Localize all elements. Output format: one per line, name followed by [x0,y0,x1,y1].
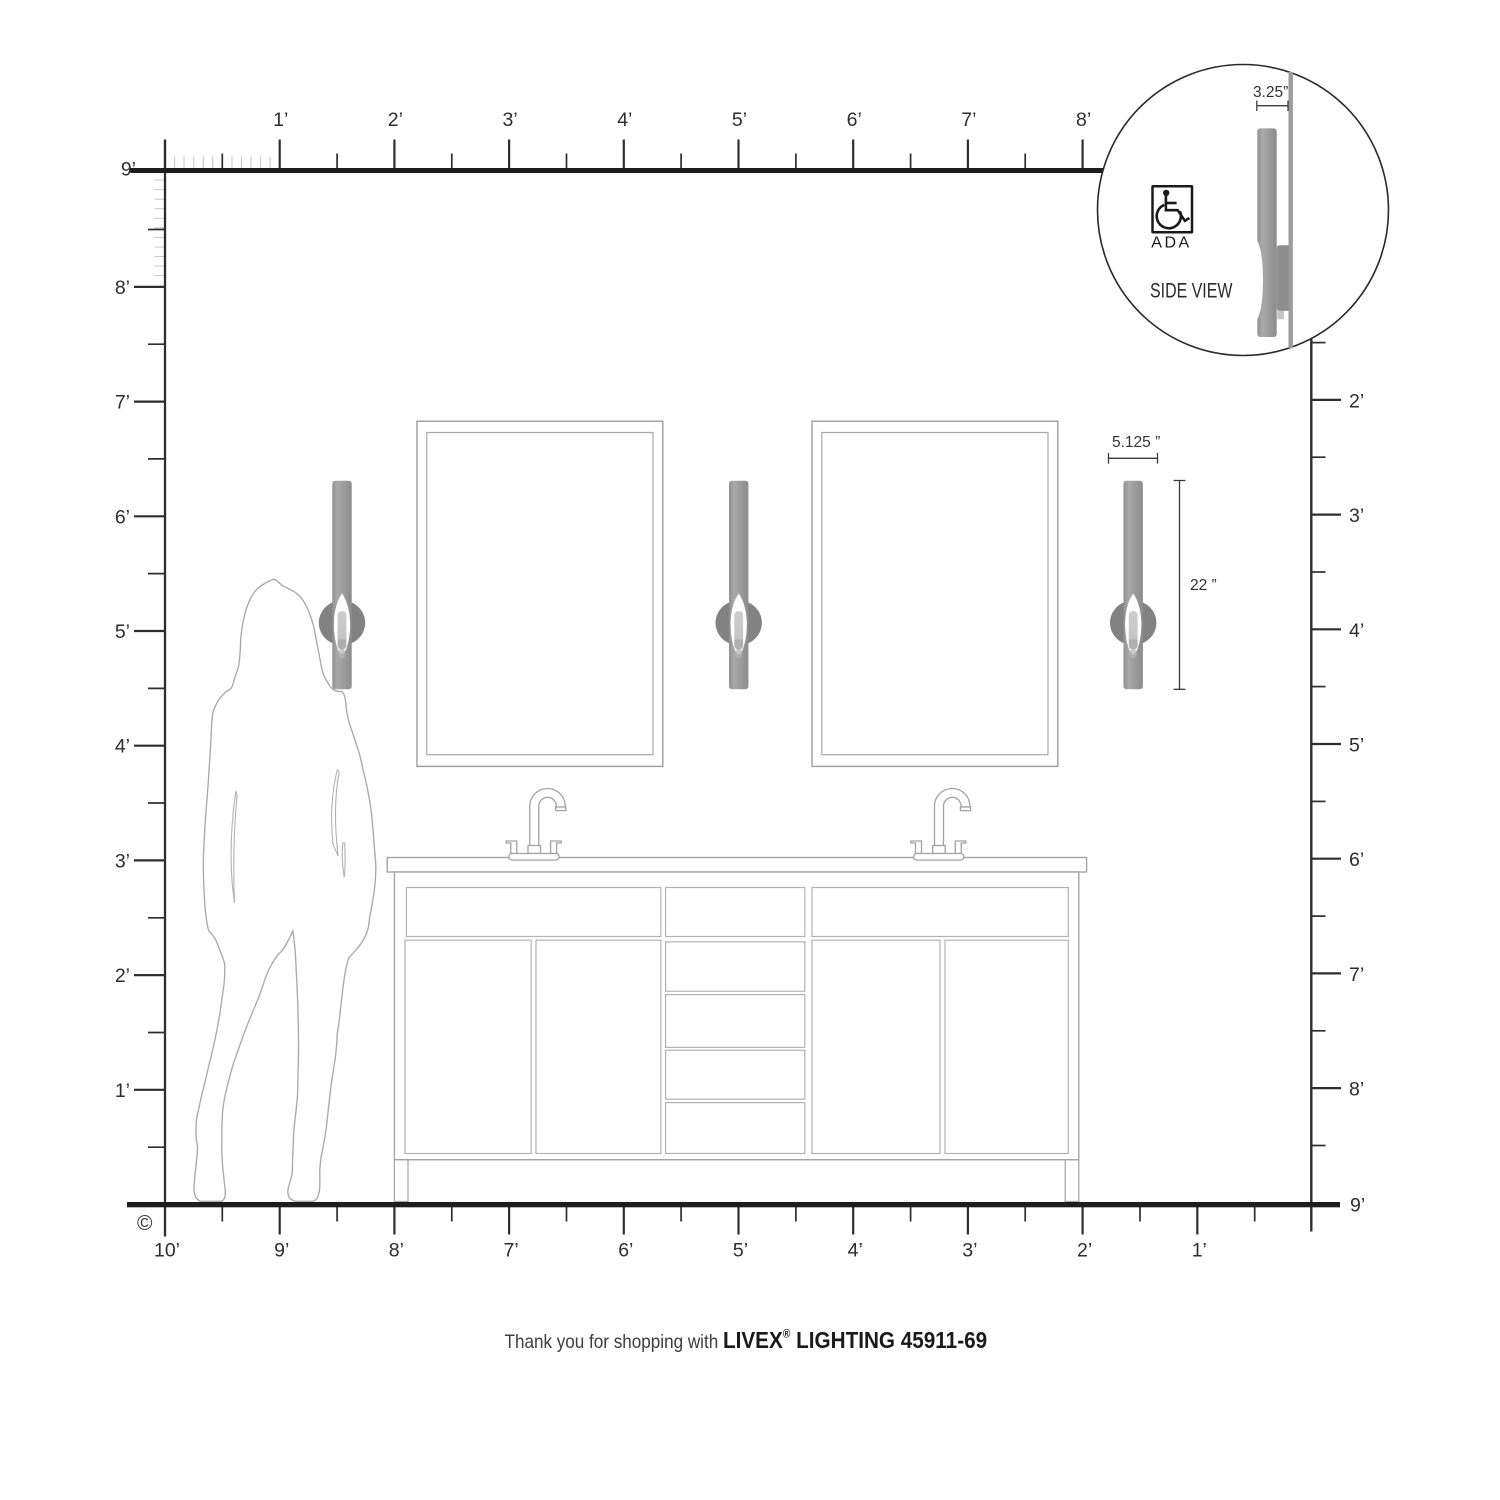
svg-text:2’: 2’ [388,109,403,131]
svg-text:5’: 5’ [115,621,130,643]
svg-text:7’: 7’ [504,1240,519,1262]
svg-text:8’: 8’ [389,1240,404,1262]
svg-text:4’: 4’ [617,109,632,131]
svg-text:3’: 3’ [962,1240,977,1262]
svg-text:2’: 2’ [115,965,130,987]
svg-text:7’: 7’ [1349,964,1364,986]
svg-text:3’: 3’ [115,850,130,872]
svg-text:7’: 7’ [961,109,976,131]
svg-text:6’: 6’ [1349,849,1364,871]
svg-text:6’: 6’ [618,1240,633,1262]
svg-text:9’: 9’ [274,1240,289,1262]
svg-text:2’: 2’ [1077,1240,1092,1262]
svg-text:1’: 1’ [115,1080,130,1102]
svg-text:9’: 9’ [1350,1195,1365,1217]
svg-text:2’: 2’ [1349,390,1364,412]
svg-text:3’: 3’ [503,109,518,131]
svg-text:4’: 4’ [115,736,130,758]
svg-text:6’: 6’ [115,506,130,528]
svg-text:5’: 5’ [733,1240,748,1262]
svg-text:8’: 8’ [1349,1079,1364,1101]
svg-text:©: © [137,1212,153,1235]
svg-text:ADA: ADA [1151,235,1191,252]
svg-text:22 ”: 22 ” [1190,577,1217,594]
svg-text:10’: 10’ [154,1240,180,1262]
svg-text:8’: 8’ [1076,109,1091,131]
svg-text:5’: 5’ [1349,735,1364,757]
svg-text:3’: 3’ [1349,505,1364,527]
svg-text:Thank you for shopping with LI: Thank you for shopping with LIVEX® LIGHT… [505,1327,988,1353]
svg-text:5’: 5’ [732,109,747,131]
svg-text:8’: 8’ [115,277,130,299]
svg-text:1’: 1’ [1192,1240,1207,1262]
svg-text:4’: 4’ [848,1240,863,1262]
svg-text:3.25”: 3.25” [1253,84,1288,101]
svg-text:4’: 4’ [1349,620,1364,642]
svg-text:1’: 1’ [273,109,288,131]
svg-text:5.125 ”: 5.125 ” [1112,434,1160,451]
svg-text:6’: 6’ [847,109,862,131]
svg-text:SIDE VIEW: SIDE VIEW [1150,278,1233,302]
svg-text:7’: 7’ [115,392,130,414]
